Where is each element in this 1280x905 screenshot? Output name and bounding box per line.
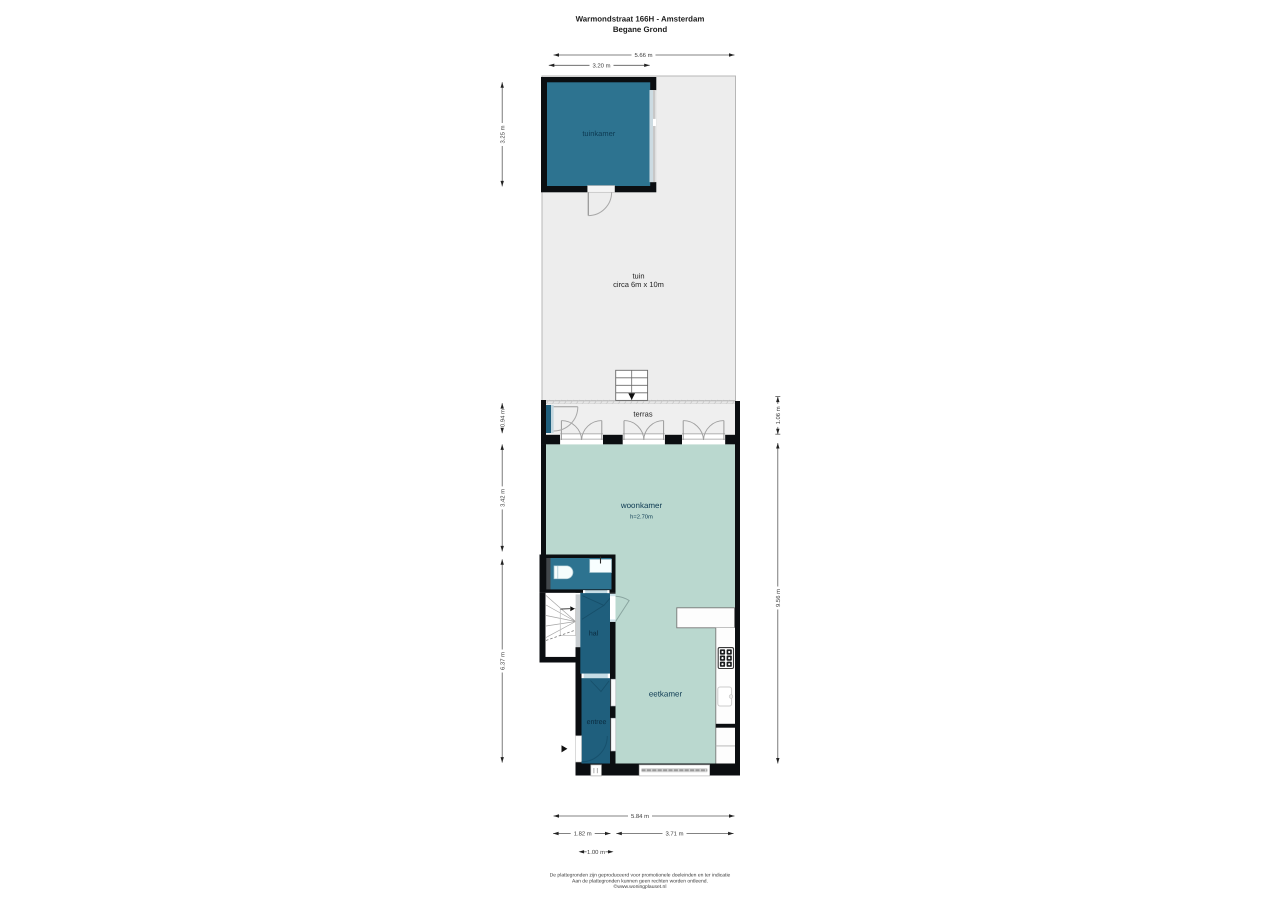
svg-text:3.42 m: 3.42 m: [499, 489, 506, 507]
svg-text:3.20 m: 3.20 m: [592, 63, 610, 70]
svg-text:1.00 m: 1.00 m: [587, 849, 605, 856]
svg-text:hal: hal: [589, 630, 599, 638]
svg-text:Begane Grond: Begane Grond: [613, 25, 668, 34]
svg-text:9.56 m: 9.56 m: [775, 589, 782, 607]
svg-text:Warmondstraat 166H - Amsterdam: Warmondstraat 166H - Amsterdam: [576, 14, 705, 23]
svg-text:entree: entree: [587, 719, 607, 726]
svg-text:6.37 m: 6.37 m: [499, 652, 506, 670]
svg-text:3.71 m: 3.71 m: [665, 831, 683, 838]
svg-text:1.82 m: 1.82 m: [574, 831, 592, 838]
svg-text:h=2.70m: h=2.70m: [630, 513, 653, 520]
svg-text:3.25 m: 3.25 m: [499, 125, 506, 143]
svg-text:tuinkamer: tuinkamer: [582, 129, 615, 138]
svg-text:0.94 m: 0.94 m: [499, 409, 506, 427]
svg-text:1.06 m: 1.06 m: [775, 406, 782, 424]
svg-text:©www.woningplauset.nl: ©www.woningplauset.nl: [614, 884, 667, 890]
svg-text:terras: terras: [633, 410, 652, 419]
svg-text:5.66 m: 5.66 m: [634, 52, 652, 59]
svg-text:woonkamer: woonkamer: [620, 501, 663, 510]
svg-text:circa 6m x 10m: circa 6m x 10m: [613, 280, 664, 289]
svg-text:5.84 m: 5.84 m: [631, 813, 649, 820]
svg-text:eetkamer: eetkamer: [649, 690, 683, 699]
